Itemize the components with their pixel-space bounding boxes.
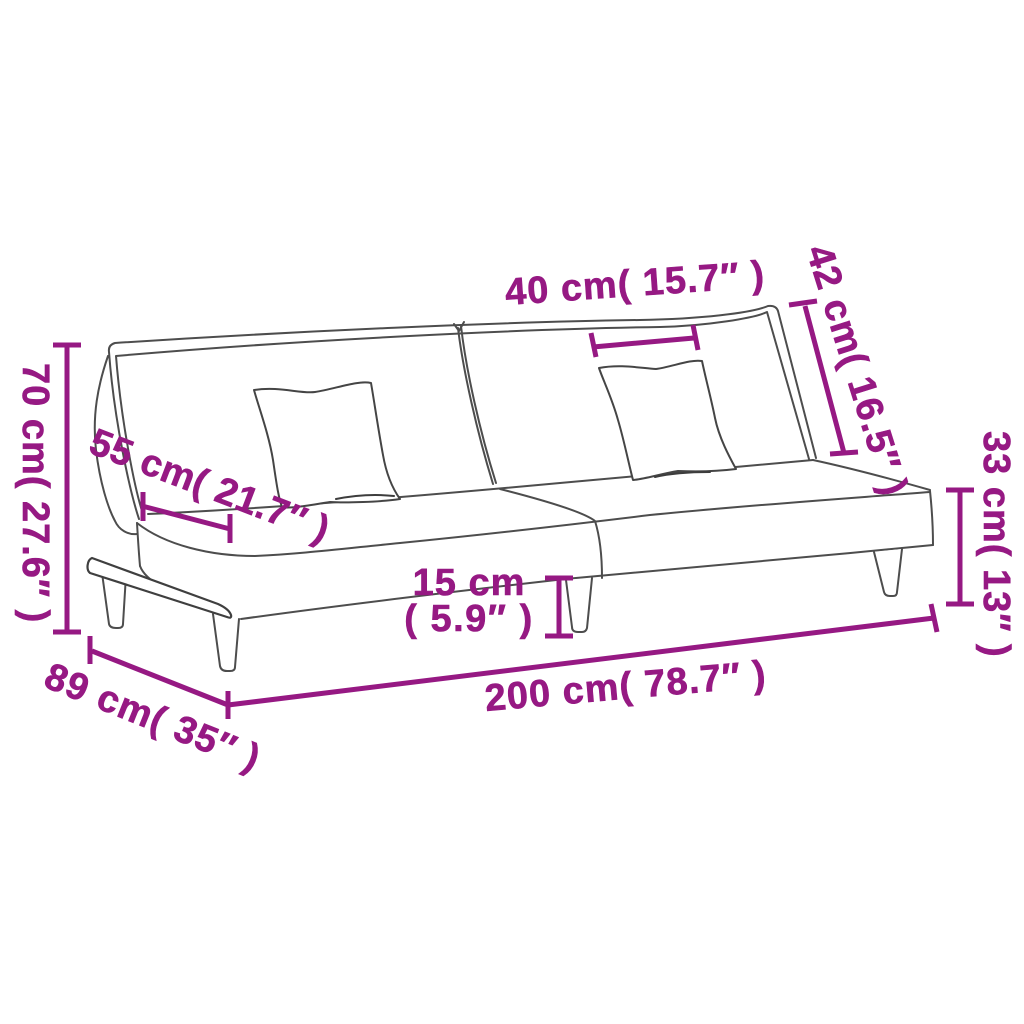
svg-text:( 5.9″ ): ( 5.9″ ) (404, 598, 533, 640)
svg-text:40 cm( 15.7″ ): 40 cm( 15.7″ ) (504, 254, 767, 314)
svg-text:70 cm( 27.6″ ): 70 cm( 27.6″ ) (14, 363, 56, 623)
svg-text:42 cm( 16.5″ ): 42 cm( 16.5″ ) (797, 240, 915, 501)
svg-text:33 cm( 13″ ): 33 cm( 13″ ) (975, 431, 1017, 658)
svg-text:200 cm( 78.7″ ): 200 cm( 78.7″ ) (483, 654, 768, 720)
